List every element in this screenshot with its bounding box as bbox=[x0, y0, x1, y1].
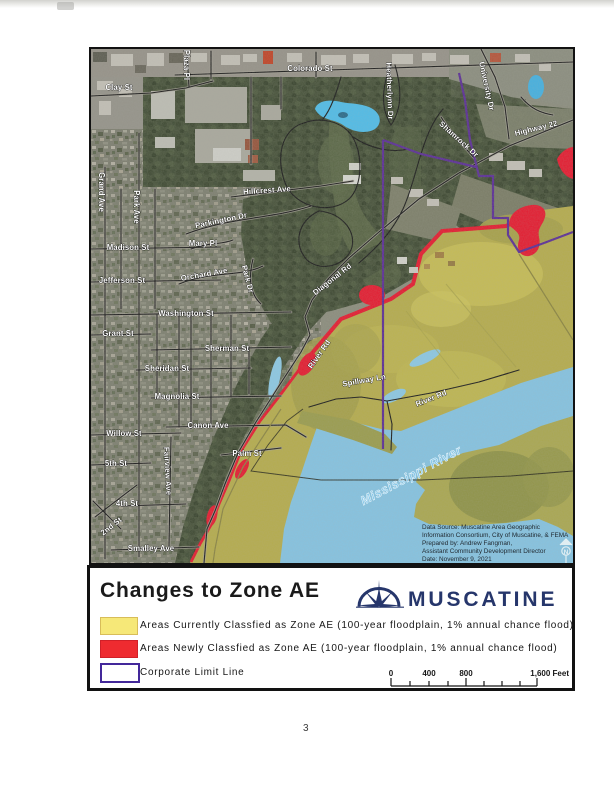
svg-text:800: 800 bbox=[459, 669, 473, 678]
svg-text:Washington St: Washington St bbox=[158, 309, 214, 318]
svg-text:Colorado St: Colorado St bbox=[287, 64, 333, 73]
svg-text:Sheridan St: Sheridan St bbox=[145, 364, 190, 373]
svg-text:Grand Ave: Grand Ave bbox=[97, 172, 106, 212]
svg-text:Palm St: Palm St bbox=[232, 449, 262, 458]
svg-text:Magnolia St: Magnolia St bbox=[155, 392, 200, 401]
svg-text:4th St: 4th St bbox=[116, 499, 139, 508]
svg-text:5th St: 5th St bbox=[105, 459, 128, 468]
svg-text:MUSCATINE: MUSCATINE bbox=[408, 588, 557, 611]
svg-text:Date: November 9, 2021: Date: November 9, 2021 bbox=[422, 556, 492, 563]
svg-text:N: N bbox=[564, 549, 569, 556]
svg-text:400: 400 bbox=[422, 669, 436, 678]
svg-text:Assistant Community Developmen: Assistant Community Development Director bbox=[422, 548, 546, 555]
svg-text:Prepared by: Andrew Fangman,: Prepared by: Andrew Fangman, bbox=[422, 540, 512, 547]
svg-text:Information Consortium, City o: Information Consortium, City of Muscatin… bbox=[422, 532, 569, 539]
svg-text:Grant St: Grant St bbox=[102, 329, 134, 338]
svg-text:Smalley Ave: Smalley Ave bbox=[128, 544, 175, 553]
svg-text:Sherman St: Sherman St bbox=[205, 344, 250, 353]
svg-text:Canon Ave: Canon Ave bbox=[187, 421, 229, 430]
svg-text:Mary Pl: Mary Pl bbox=[189, 239, 217, 248]
svg-text:Jefferson St: Jefferson St bbox=[99, 276, 146, 285]
svg-text:Clay St: Clay St bbox=[105, 83, 132, 92]
svg-text:1,600 Feet: 1,600 Feet bbox=[530, 669, 569, 678]
svg-text:Willow St: Willow St bbox=[106, 429, 142, 438]
svg-text:Madison St: Madison St bbox=[107, 243, 150, 252]
svg-text:Park Ave: Park Ave bbox=[132, 190, 141, 224]
svg-text:0: 0 bbox=[389, 669, 394, 678]
svg-text:Plaza Pl: Plaza Pl bbox=[182, 50, 191, 80]
svg-text:Data Source: Muscatine Area Ge: Data Source: Muscatine Area Geographic bbox=[422, 524, 541, 531]
